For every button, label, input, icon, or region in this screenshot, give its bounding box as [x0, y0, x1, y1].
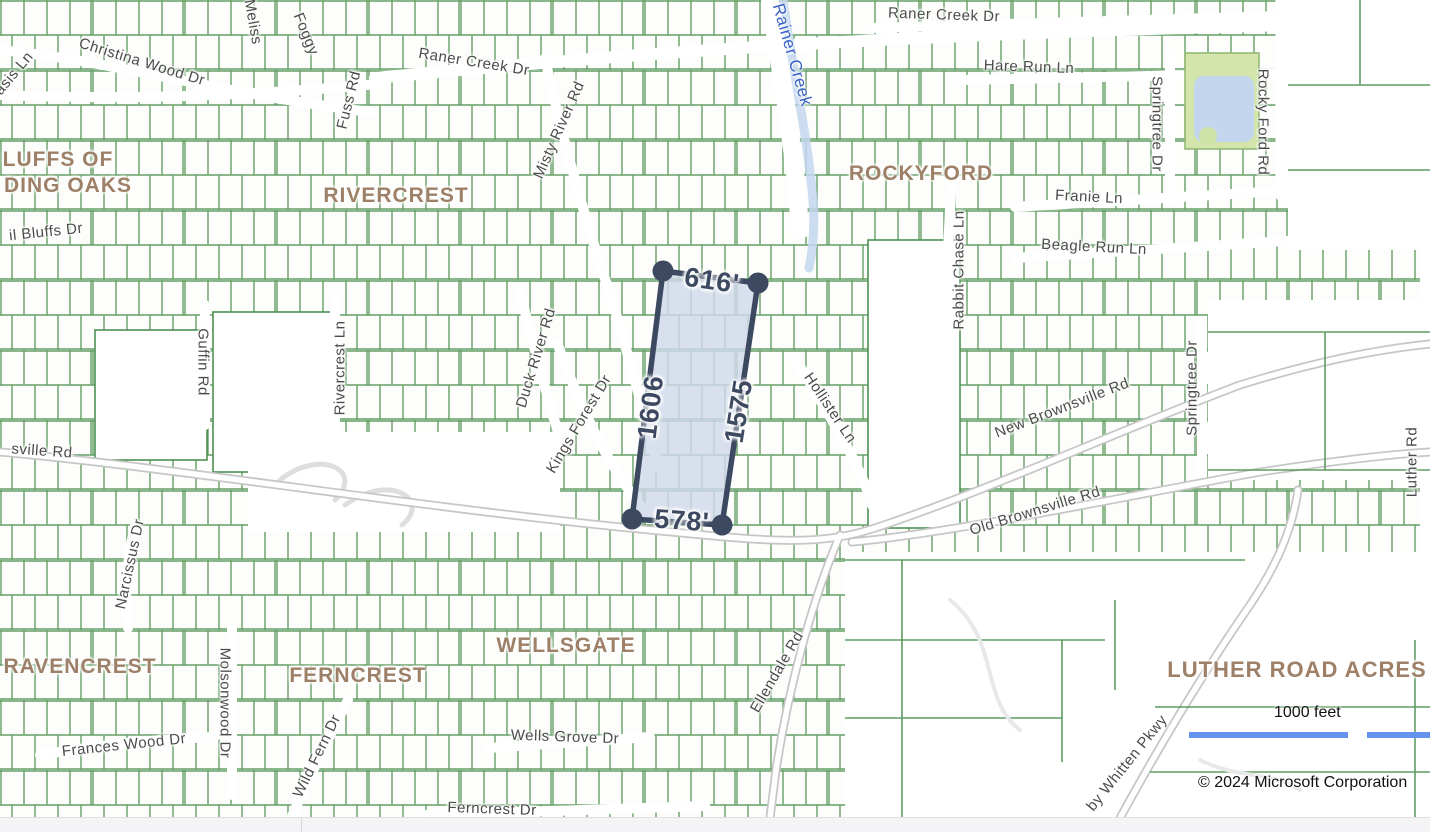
measurement-vertex[interactable]	[712, 515, 733, 536]
measurement-vertex[interactable]	[653, 261, 674, 282]
measurement-vertex[interactable]	[748, 273, 769, 294]
scale-bar	[1189, 732, 1430, 738]
bottom-bar-divider	[301, 818, 302, 832]
measurement-vertex[interactable]	[622, 509, 643, 530]
park	[1185, 53, 1259, 149]
bottom-bar	[0, 817, 1430, 832]
map-screenshot: 1000 feet © 2024 Microsoft Corporation L…	[0, 0, 1430, 832]
map-canvas[interactable]	[0, 0, 1430, 818]
map-viewport[interactable]: 1000 feet © 2024 Microsoft Corporation L…	[0, 0, 1430, 818]
